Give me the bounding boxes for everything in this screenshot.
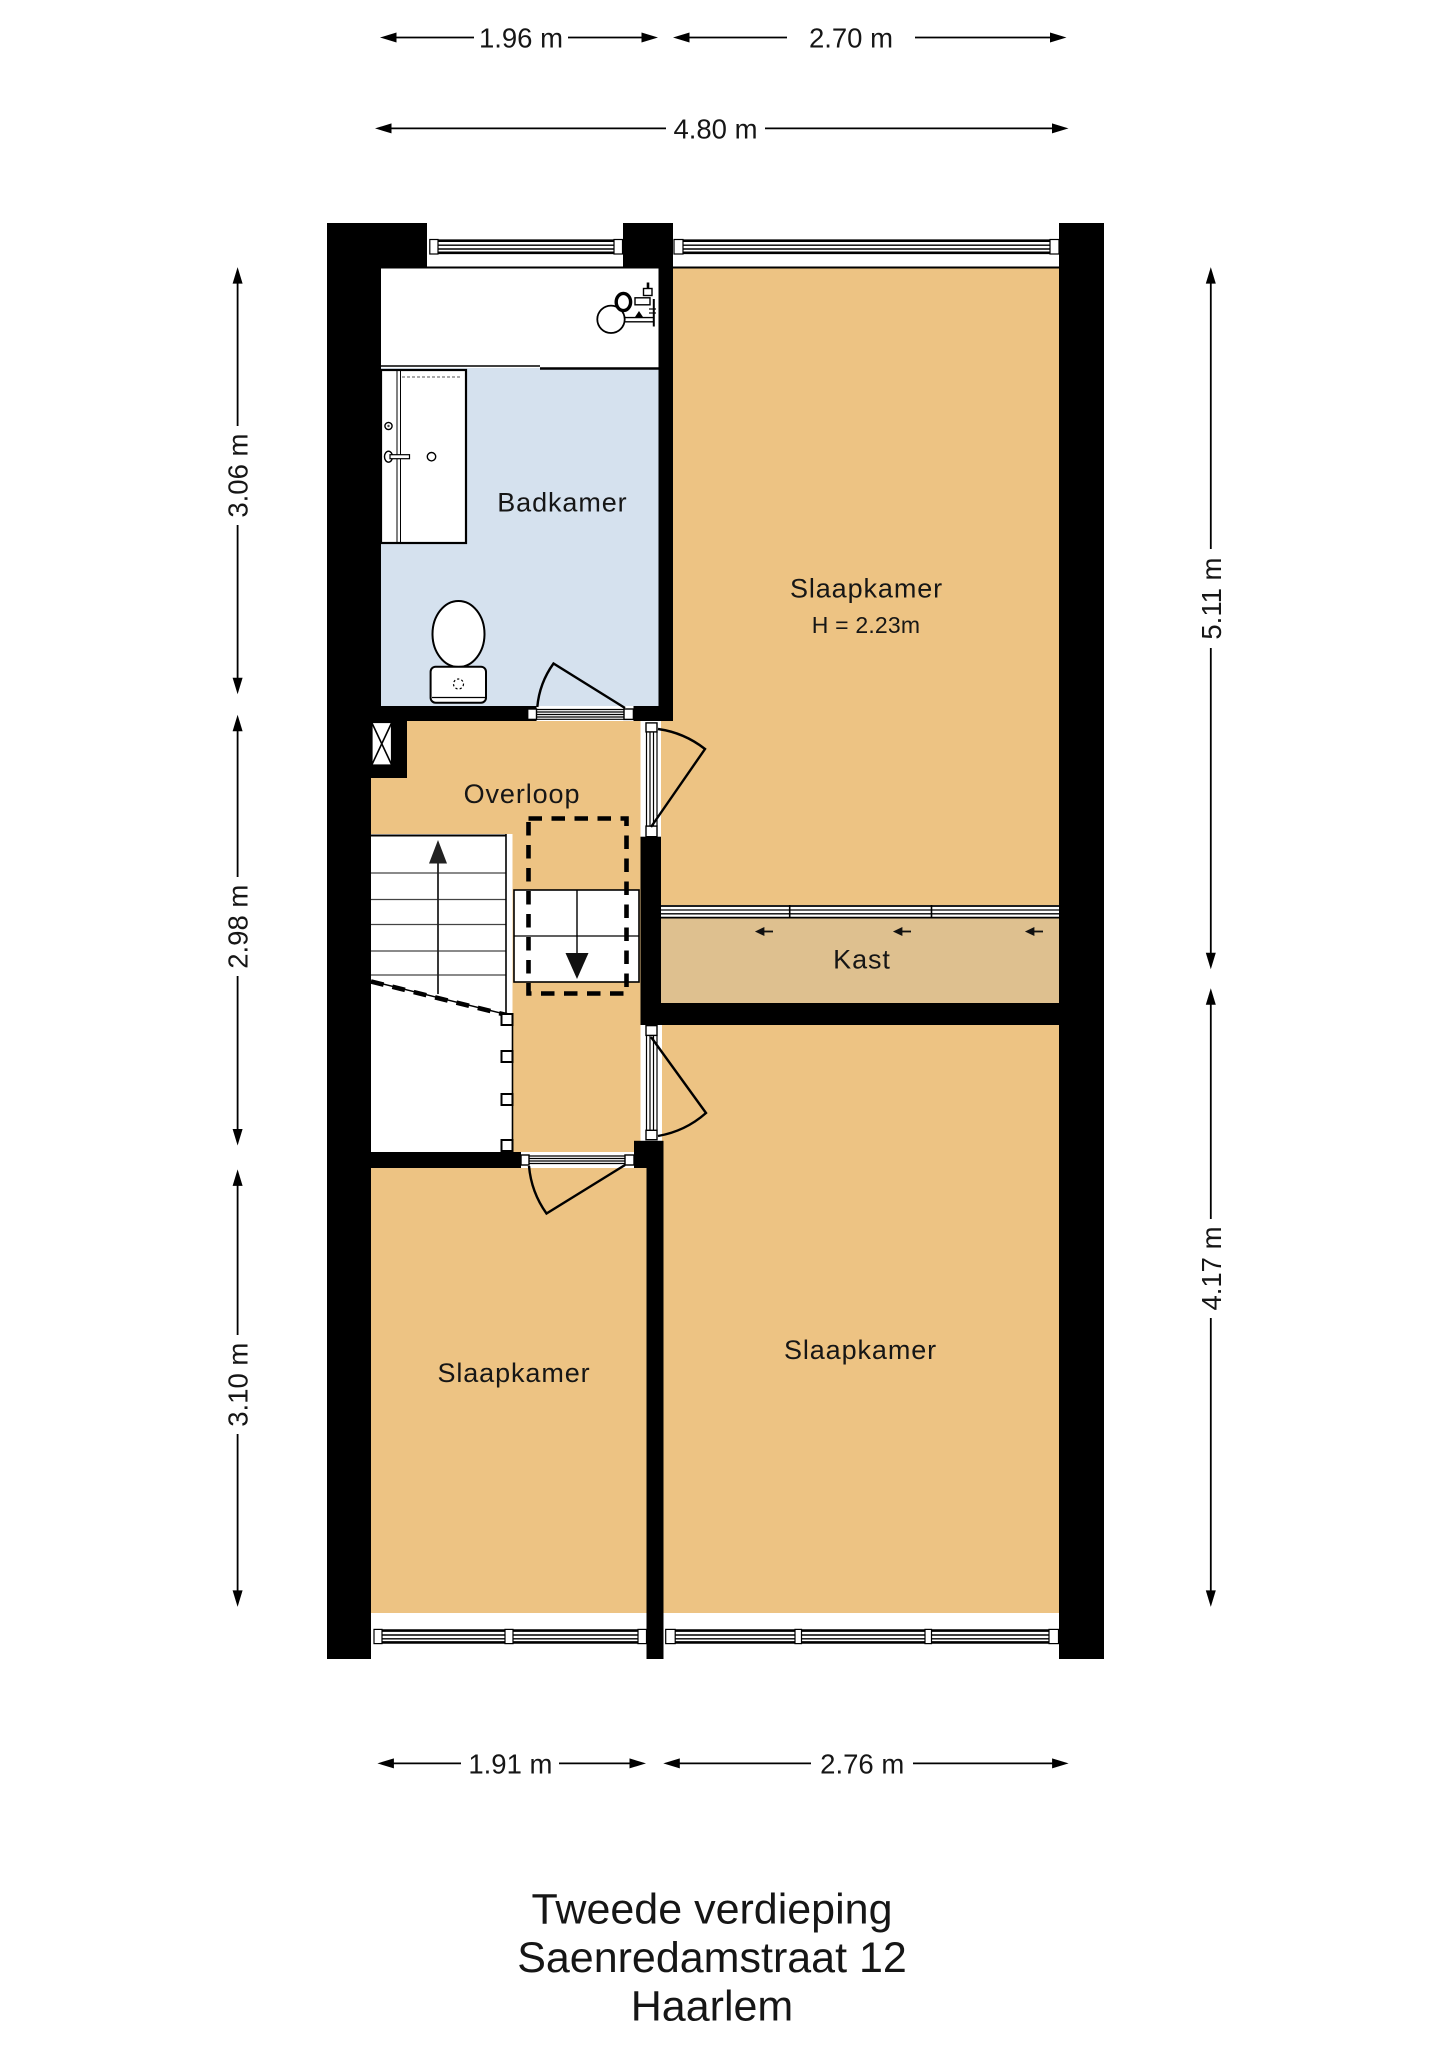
svg-text:Badkamer: Badkamer — [497, 488, 627, 518]
svg-text:Slaapkamer: Slaapkamer — [437, 1358, 590, 1388]
svg-text:Slaapkamer: Slaapkamer — [790, 574, 943, 604]
svg-text:Haarlem: Haarlem — [631, 1983, 794, 2031]
svg-text:Kast: Kast — [833, 945, 891, 975]
svg-text:3.06 m: 3.06 m — [223, 434, 254, 518]
svg-text:Overloop: Overloop — [464, 779, 581, 809]
svg-text:2.98 m: 2.98 m — [223, 885, 254, 969]
svg-text:1.96 m: 1.96 m — [479, 23, 563, 54]
svg-text:3.10 m: 3.10 m — [223, 1343, 254, 1427]
svg-text:2.70 m: 2.70 m — [809, 23, 893, 54]
svg-text:5.11 m: 5.11 m — [1196, 558, 1227, 640]
svg-text:Slaapkamer: Slaapkamer — [784, 1335, 937, 1365]
svg-text:1.91 m: 1.91 m — [468, 1748, 552, 1779]
svg-text:Saenredamstraat 12: Saenredamstraat 12 — [517, 1934, 907, 1982]
svg-text:Tweede verdieping: Tweede verdieping — [532, 1886, 893, 1934]
svg-text:2.76 m: 2.76 m — [820, 1748, 904, 1779]
svg-text:H = 2.23m: H = 2.23m — [812, 612, 921, 638]
svg-text:4.80 m: 4.80 m — [673, 113, 757, 144]
svg-text:4.17 m: 4.17 m — [1196, 1226, 1227, 1310]
